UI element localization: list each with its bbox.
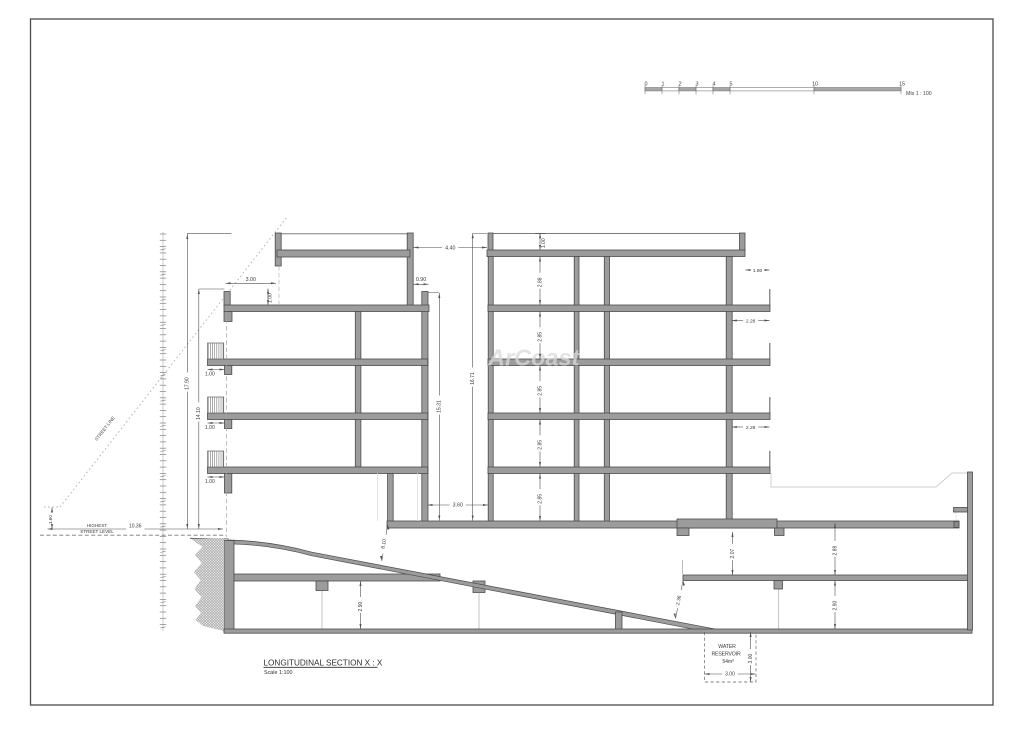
svg-text:1.00: 1.00 [205, 425, 215, 431]
svg-text:RESERVOIR: RESERVOIR [711, 651, 741, 657]
svg-text:16.71: 16.71 [470, 372, 476, 385]
svg-text:3.00: 3.00 [748, 654, 754, 664]
svg-text:2.85: 2.85 [537, 332, 543, 342]
svg-text:2.07: 2.07 [730, 549, 736, 559]
svg-text:2.85: 2.85 [537, 494, 543, 504]
svg-text:5: 5 [729, 81, 732, 87]
svg-text:17.90: 17.90 [185, 377, 191, 390]
svg-text:0.90: 0.90 [416, 277, 426, 283]
svg-text:1: 1 [661, 81, 664, 87]
svg-text:3.60: 3.60 [453, 503, 463, 509]
svg-text:Mts 1 : 100: Mts 1 : 100 [906, 91, 932, 97]
svg-text:4: 4 [712, 81, 715, 87]
svg-text:2.28: 2.28 [746, 318, 756, 324]
svg-text:54m³: 54m³ [722, 659, 734, 665]
svg-text:2: 2 [678, 81, 681, 87]
svg-text:ArCoast: ArCoast [487, 345, 581, 371]
svg-text:2.89: 2.89 [832, 546, 838, 556]
svg-text:10.36: 10.36 [129, 524, 142, 530]
svg-text:WATER: WATER [718, 644, 736, 650]
svg-text:0: 0 [644, 81, 647, 87]
svg-text:2.85: 2.85 [537, 440, 543, 450]
svg-text:1.00: 1.00 [541, 238, 547, 248]
svg-text:Scale 1:100: Scale 1:100 [264, 670, 292, 676]
svg-text:4.40: 4.40 [445, 245, 455, 251]
svg-text:3.00: 3.00 [725, 672, 735, 678]
svg-text:2.90: 2.90 [832, 601, 838, 611]
svg-text:1.80: 1.80 [753, 268, 763, 274]
svg-text:STREET LEVEL: STREET LEVEL [80, 529, 114, 534]
svg-text:15: 15 [899, 81, 905, 87]
svg-text:1.00: 1.00 [268, 293, 274, 303]
svg-text:HIGHEST: HIGHEST [87, 523, 108, 528]
svg-text:3: 3 [695, 81, 698, 87]
svg-text:2.90: 2.90 [358, 602, 364, 612]
svg-text:LONGITUDINAL SECTION X : X: LONGITUDINAL SECTION X : X [264, 658, 383, 667]
svg-text:1.60: 1.60 [48, 515, 53, 525]
svg-text:1.00: 1.00 [205, 372, 215, 378]
svg-text:3.00: 3.00 [246, 277, 256, 283]
svg-text:10: 10 [812, 81, 818, 87]
svg-text:15.31: 15.31 [437, 400, 443, 413]
svg-text:2.85: 2.85 [537, 386, 543, 396]
svg-text:2.28: 2.28 [746, 425, 756, 431]
svg-text:14.10: 14.10 [196, 407, 202, 420]
svg-text:2.88: 2.88 [537, 277, 543, 287]
svg-text:1.00: 1.00 [205, 479, 215, 485]
